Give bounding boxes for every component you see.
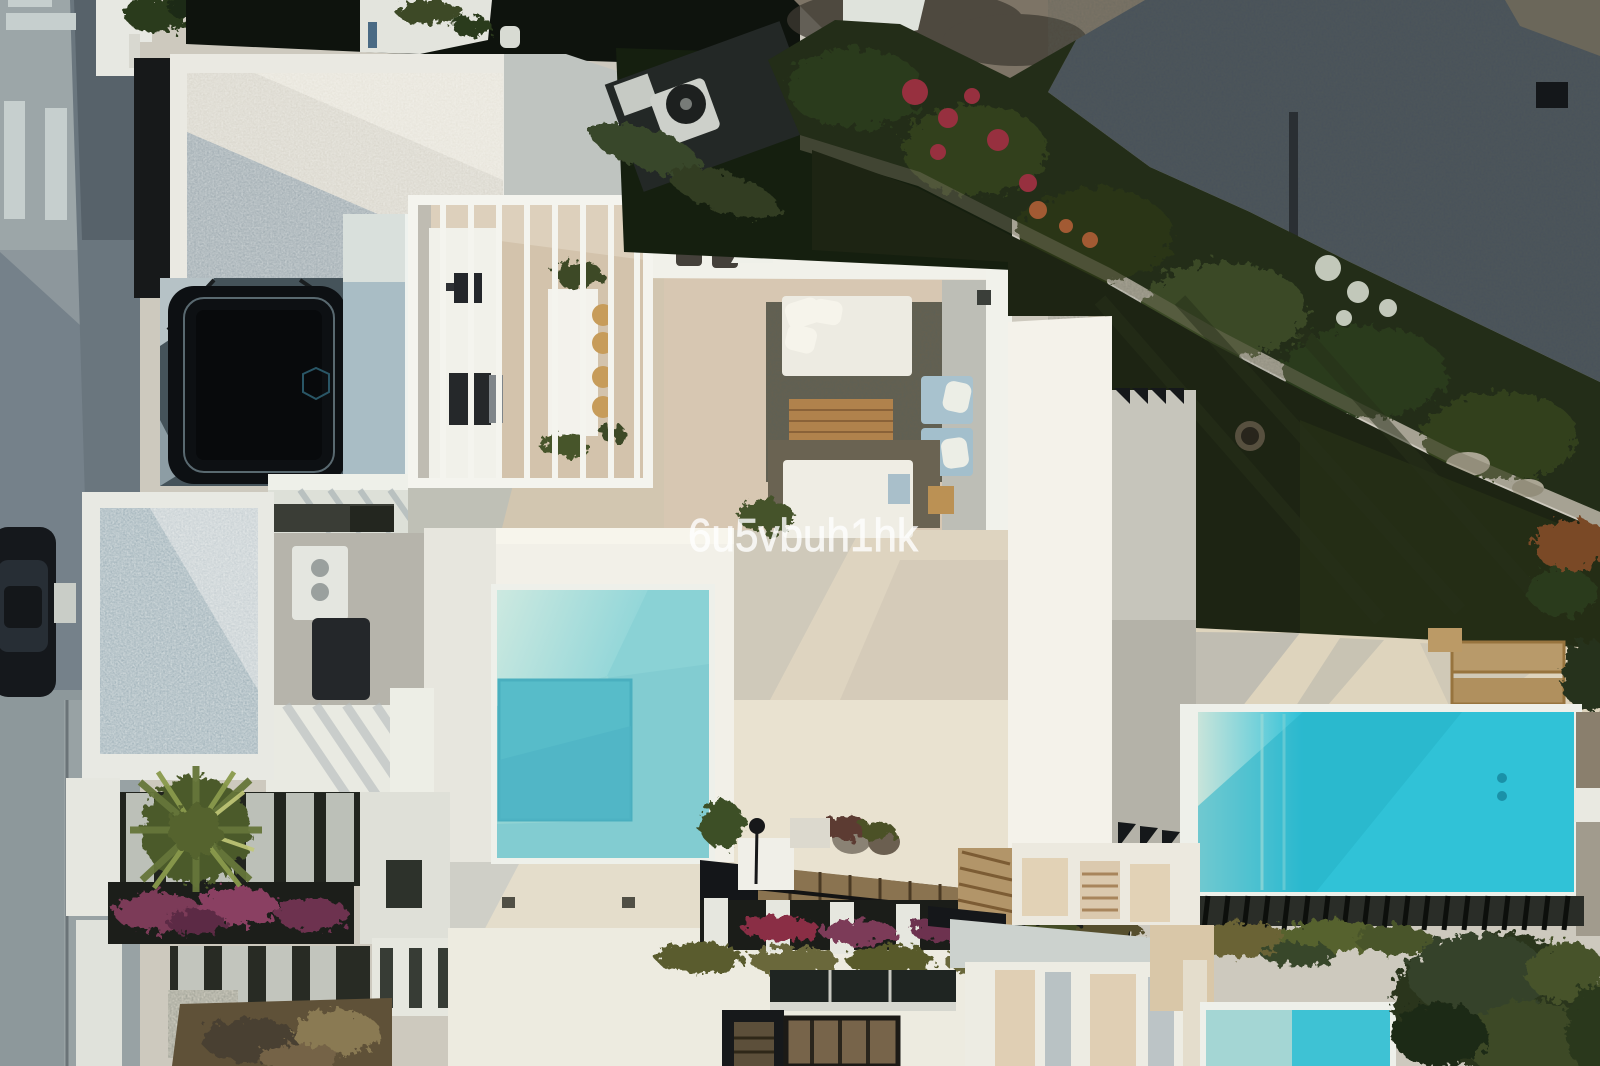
svg-text:6u5vbuh1hk: 6u5vbuh1hk — [688, 509, 919, 561]
